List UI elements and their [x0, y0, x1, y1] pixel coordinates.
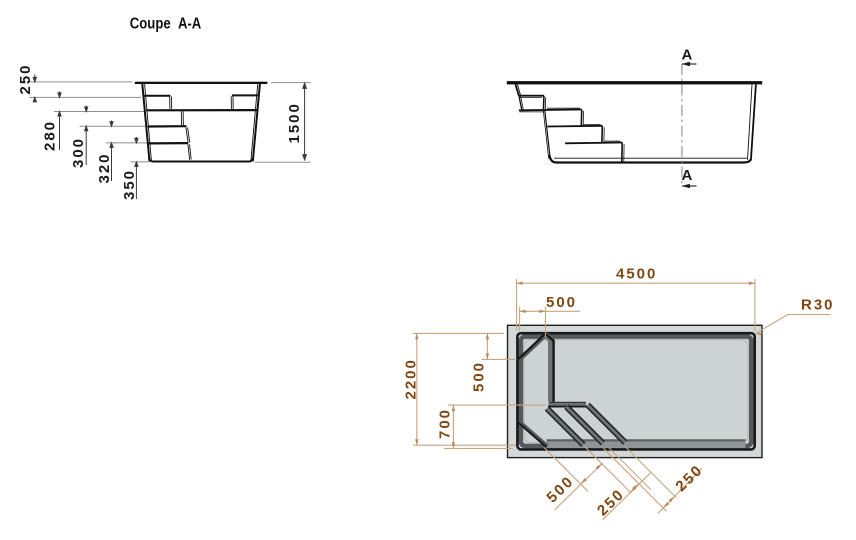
svg-text:2200: 2200 — [403, 358, 420, 399]
svg-text:350: 350 — [121, 169, 138, 200]
svg-text:250: 250 — [17, 63, 34, 94]
svg-text:A: A — [682, 47, 693, 64]
svg-text:700: 700 — [437, 408, 454, 439]
svg-text:A: A — [682, 167, 693, 184]
svg-text:1500: 1500 — [286, 102, 303, 143]
svg-text:250: 250 — [594, 486, 628, 520]
svg-text:500: 500 — [546, 294, 577, 311]
svg-text:250: 250 — [672, 461, 706, 495]
svg-text:500: 500 — [471, 361, 488, 392]
svg-text:Coupe A-A: Coupe A-A — [130, 15, 202, 32]
svg-text:4500: 4500 — [616, 266, 657, 283]
svg-text:320: 320 — [96, 152, 113, 183]
svg-text:R30: R30 — [801, 297, 835, 314]
svg-text:300: 300 — [70, 137, 87, 168]
svg-text:500: 500 — [543, 473, 577, 507]
svg-text:280: 280 — [42, 120, 59, 151]
